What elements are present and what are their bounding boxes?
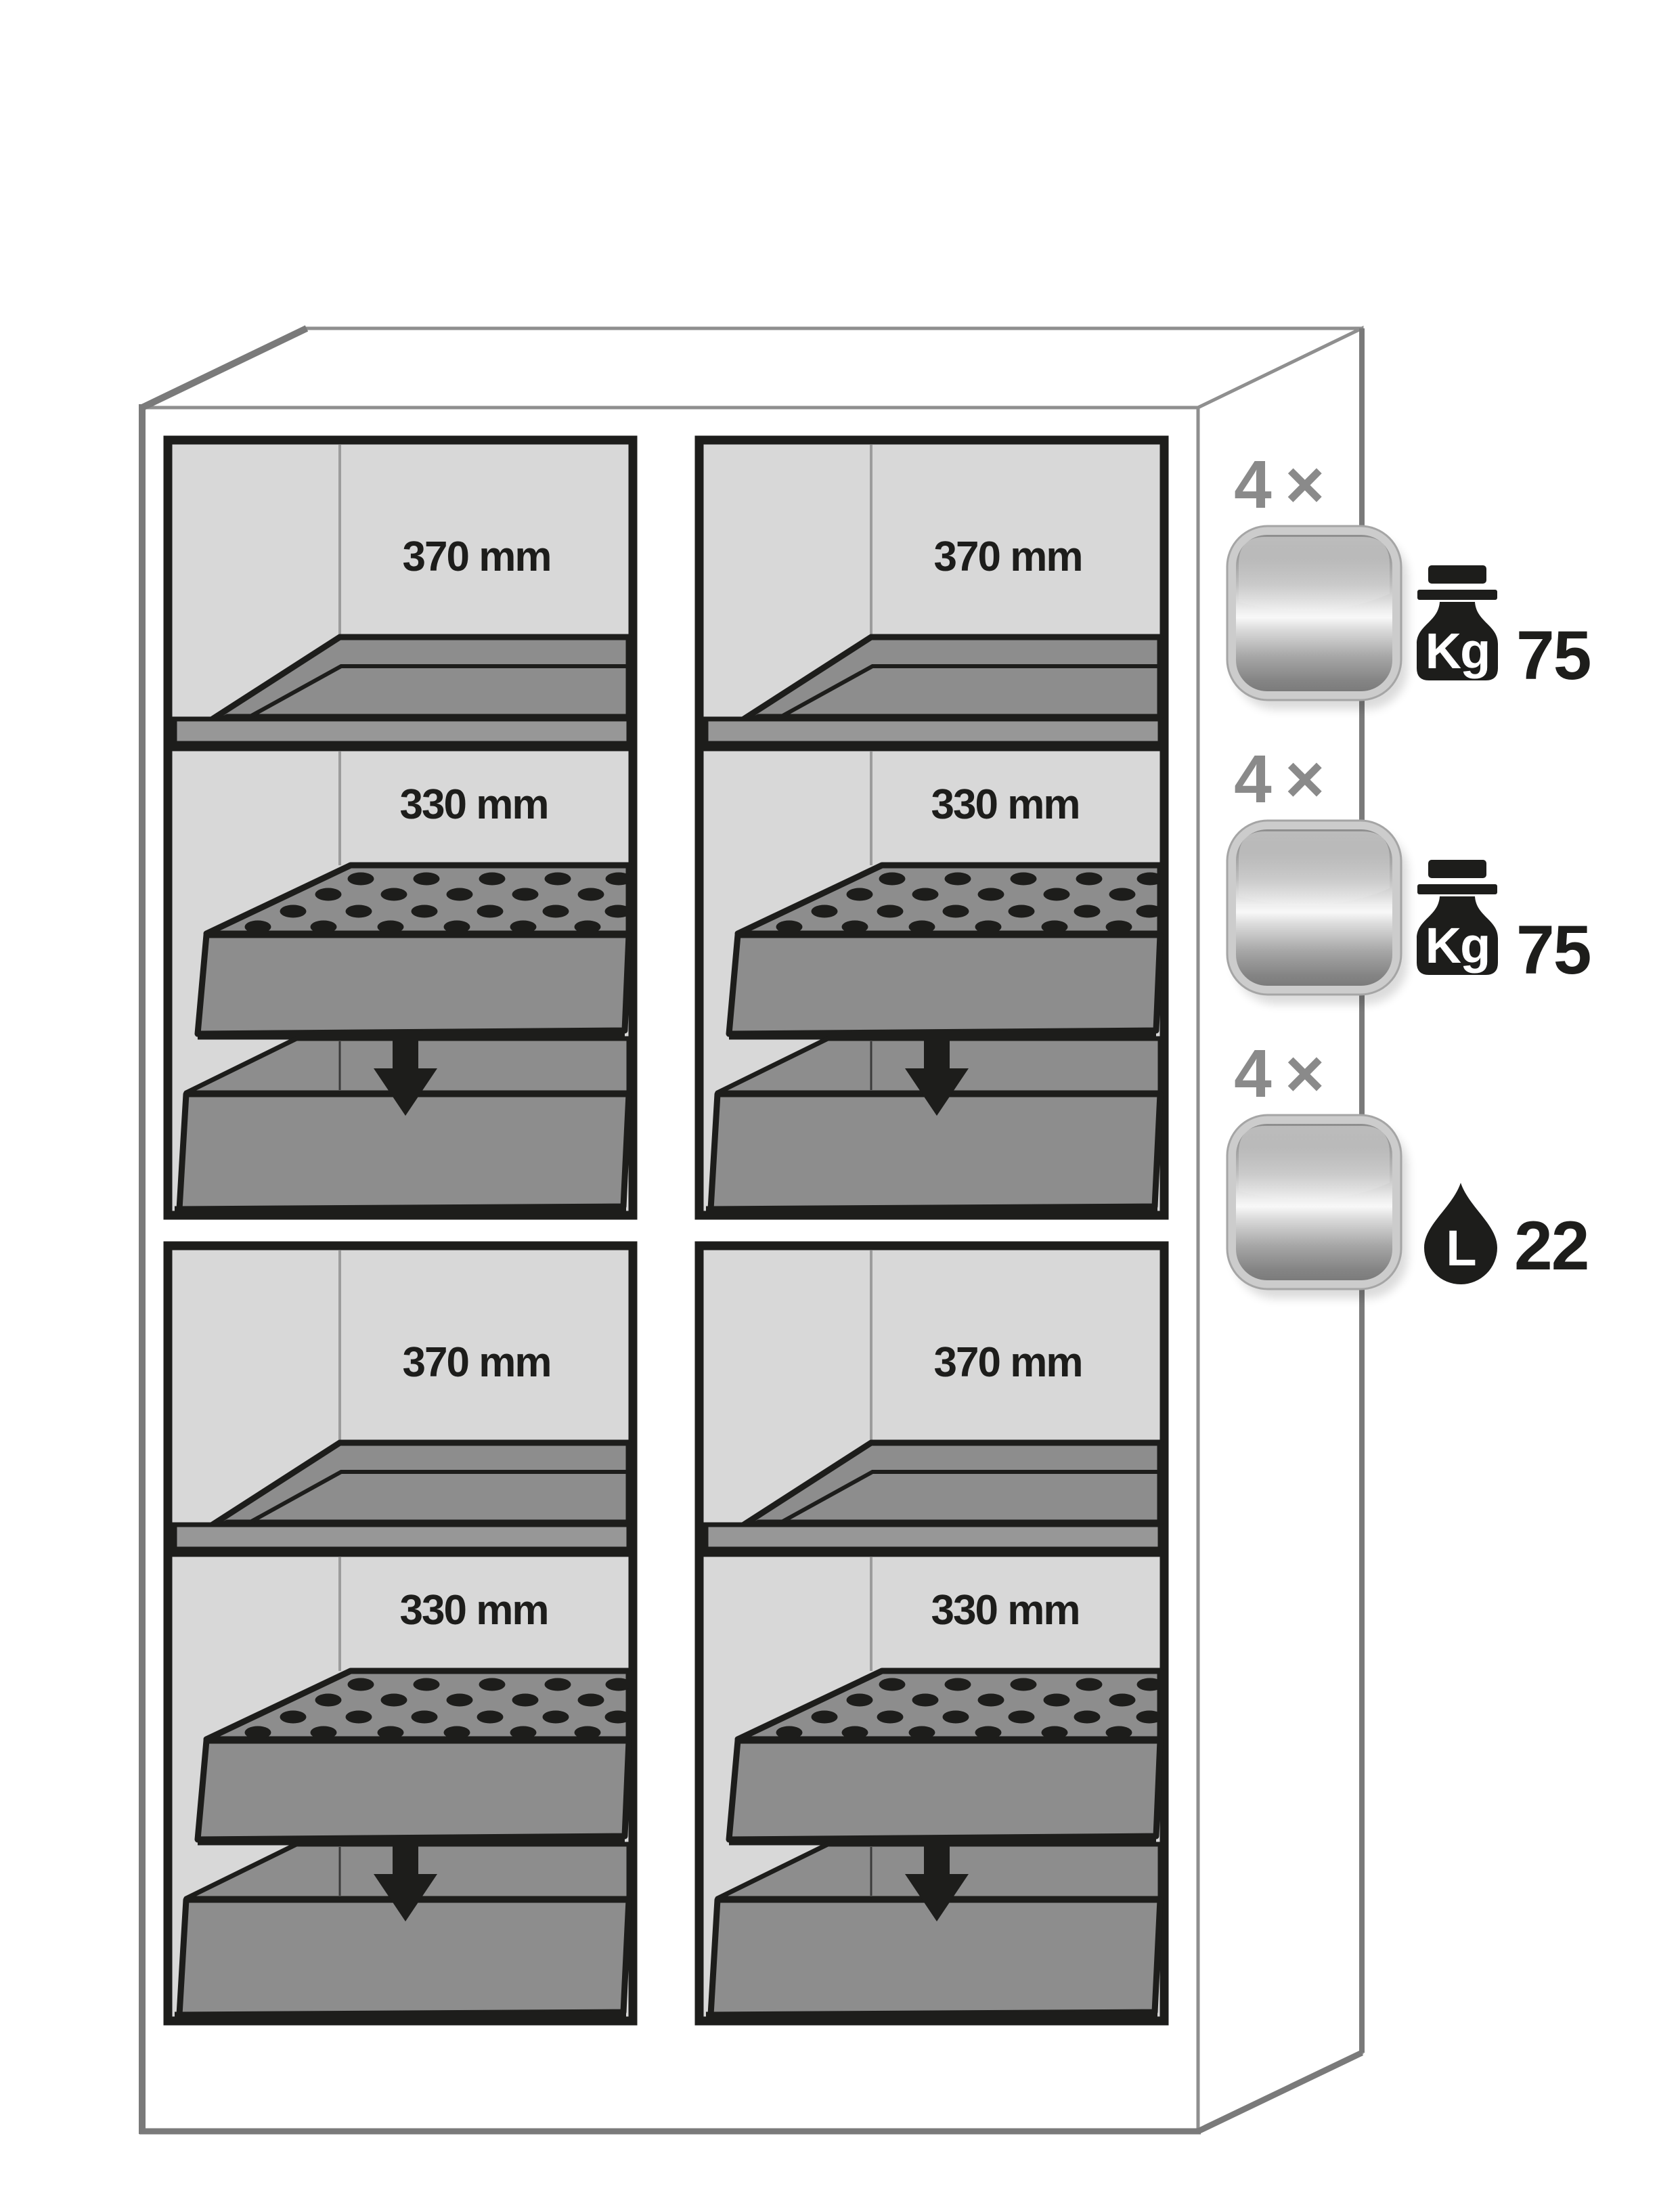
cabinet-top-face	[142, 328, 1362, 408]
count-label: 4 ×	[1234, 447, 1322, 523]
metal-tray-icon	[1227, 821, 1408, 1004]
capacity-value: 22	[1514, 1207, 1588, 1284]
compartment-bottom-left: 370 mm 330 mm	[168, 1246, 633, 2021]
legend-item-shelves-2: 4 × Kg 75	[1227, 741, 1590, 1004]
count-label: 4 ×	[1234, 1036, 1322, 1112]
shelf-clearance-label: 370 mm	[934, 534, 1082, 580]
sump-clearance-label: 330 mm	[931, 781, 1080, 828]
shelf-clearance-label: 370 mm	[934, 1339, 1082, 1386]
capacity-value: 75	[1516, 911, 1590, 988]
unit-label: L	[1446, 1220, 1475, 1276]
liquid-drop-icon: L	[1424, 1183, 1497, 1284]
metal-tray-icon	[1227, 526, 1408, 710]
metal-tray-icon	[1227, 1115, 1408, 1299]
shelf-clearance-label: 370 mm	[403, 534, 551, 580]
sump-clearance-label: 330 mm	[400, 1587, 548, 1634]
cabinet-interior-diagram: 370 mm 330 mm 370 mm 330 mm 370 mm 330 m…	[0, 0, 1680, 2199]
capacity-value: 75	[1516, 617, 1590, 694]
sump-clearance-label: 330 mm	[931, 1587, 1080, 1634]
unit-label: Kg	[1425, 623, 1490, 679]
shelf-clearance-label: 370 mm	[403, 1339, 551, 1386]
legend-item-shelves-1: 4 × Kg 75	[1227, 447, 1590, 710]
count-label: 4 ×	[1234, 741, 1322, 817]
weight-kg-icon: Kg	[1417, 860, 1498, 975]
weight-kg-icon: Kg	[1417, 565, 1498, 680]
compartment-top-left: 370 mm 330 mm	[168, 440, 633, 1215]
legend-item-sumps: 4 × L 22	[1227, 1036, 1588, 1299]
compartment-bottom-right: 370 mm 330 mm	[699, 1246, 1164, 2021]
compartment-top-right: 370 mm 330 mm	[699, 440, 1164, 1215]
sump-clearance-label: 330 mm	[400, 781, 548, 828]
unit-label: Kg	[1425, 917, 1490, 974]
